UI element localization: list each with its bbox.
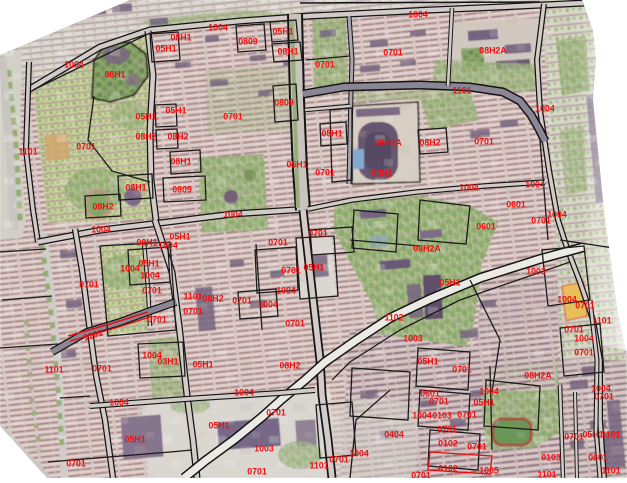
svg-text:08H1: 08H1 (136, 238, 157, 248)
svg-text:1005: 1005 (479, 466, 499, 476)
svg-text:1003: 1003 (403, 334, 423, 344)
svg-text:1101: 1101 (601, 430, 620, 440)
svg-text:05H1: 05H1 (286, 160, 307, 170)
svg-text:0701: 0701 (383, 48, 403, 58)
svg-text:08H2A: 08H2A (479, 46, 507, 56)
svg-text:1004: 1004 (408, 10, 428, 20)
svg-text:0701: 0701 (437, 425, 457, 435)
svg-text:1004: 1004 (223, 210, 243, 220)
svg-text:08H2: 08H2 (167, 132, 188, 142)
svg-text:1004: 1004 (574, 334, 594, 344)
svg-text:0701: 0701 (247, 467, 267, 477)
svg-text:1004: 1004 (535, 104, 555, 114)
svg-text:05H1: 05H1 (303, 263, 324, 273)
svg-text:1004: 1004 (349, 449, 369, 459)
svg-text:0701: 0701 (429, 397, 449, 407)
svg-text:08H2: 08H2 (279, 361, 300, 371)
svg-text:1101: 1101 (44, 365, 63, 375)
svg-text:05H1: 05H1 (371, 169, 392, 179)
svg-text:0102: 0102 (438, 464, 458, 474)
svg-text:0701: 0701 (452, 365, 472, 375)
svg-text:0701: 0701 (329, 455, 349, 465)
svg-text:08H2: 08H2 (202, 294, 223, 304)
svg-text:0701: 0701 (66, 459, 86, 469)
svg-text:08H1: 08H1 (125, 183, 146, 193)
svg-text:0701: 0701 (594, 392, 614, 402)
svg-text:1004: 1004 (109, 398, 129, 408)
svg-text:05H1: 05H1 (473, 398, 494, 408)
svg-text:0601: 0601 (476, 222, 496, 232)
svg-text:0701: 0701 (315, 168, 335, 178)
svg-text:1004: 1004 (91, 225, 111, 235)
svg-text:05H1: 05H1 (192, 360, 213, 370)
svg-text:0701: 0701 (147, 315, 167, 325)
svg-text:0701: 0701 (474, 137, 494, 147)
svg-text:0701: 0701 (411, 471, 431, 479)
svg-text:0404: 0404 (384, 430, 404, 440)
svg-text:0701: 0701 (142, 286, 162, 296)
svg-text:03H1: 03H1 (157, 357, 178, 367)
svg-text:08H2A: 08H2A (374, 138, 402, 148)
svg-text:1004: 1004 (276, 286, 296, 296)
svg-text:1003: 1003 (254, 444, 274, 454)
svg-text:05H1: 05H1 (169, 232, 190, 242)
svg-text:0103: 0103 (432, 411, 452, 421)
svg-text:1004: 1004 (479, 387, 499, 397)
svg-text:05H1: 05H1 (321, 129, 342, 139)
svg-text:0701: 0701 (285, 319, 305, 329)
svg-text:08H2: 08H2 (92, 202, 113, 212)
svg-text:08H1: 08H1 (277, 47, 298, 57)
svg-text:1004: 1004 (208, 23, 228, 33)
svg-text:08H2: 08H2 (419, 138, 440, 148)
svg-text:1003: 1003 (526, 267, 546, 277)
svg-text:1004: 1004 (120, 264, 140, 274)
svg-text:1101: 1101 (537, 470, 556, 479)
svg-text:0701: 0701 (268, 238, 288, 248)
svg-text:0701: 0701 (76, 142, 96, 152)
svg-text:05H1: 05H1 (272, 27, 293, 37)
svg-text:05H1: 05H1 (417, 357, 438, 367)
svg-text:0701: 0701 (564, 432, 584, 442)
svg-text:0701: 0701 (531, 216, 551, 226)
svg-text:0701: 0701 (574, 348, 594, 358)
svg-text:0103: 0103 (541, 453, 561, 463)
svg-text:1101: 1101 (183, 292, 202, 302)
svg-text:0701: 0701 (575, 301, 595, 311)
svg-text:05H1: 05H1 (582, 430, 603, 440)
svg-text:1004: 1004 (64, 60, 84, 70)
svg-text:1101: 1101 (309, 461, 328, 471)
svg-text:08H2: 08H2 (135, 132, 156, 142)
svg-text:0809: 0809 (274, 98, 294, 108)
svg-text:08H1: 08H1 (170, 157, 191, 167)
svg-text:1101: 1101 (601, 466, 620, 476)
svg-text:08H2A: 08H2A (524, 371, 552, 381)
svg-text:0701: 0701 (281, 266, 301, 276)
svg-text:1004: 1004 (412, 411, 432, 421)
svg-text:1102: 1102 (384, 313, 403, 323)
svg-text:05H1: 05H1 (138, 259, 159, 269)
svg-text:0809: 0809 (172, 185, 192, 195)
svg-text:05H1: 05H1 (155, 44, 176, 54)
svg-text:05H1: 05H1 (165, 106, 186, 116)
svg-text:0701: 0701 (92, 364, 112, 374)
svg-text:1004: 1004 (525, 180, 545, 190)
svg-text:0701: 0701 (457, 410, 477, 420)
svg-text:08H1: 08H1 (104, 70, 125, 80)
svg-text:0701: 0701 (266, 408, 286, 418)
svg-text:08H2A: 08H2A (413, 244, 441, 254)
svg-text:0102: 0102 (438, 439, 458, 449)
svg-text:0701: 0701 (315, 60, 335, 70)
svg-text:05H1: 05H1 (439, 278, 460, 288)
svg-text:0601: 0601 (506, 200, 526, 210)
svg-text:1004: 1004 (459, 183, 479, 193)
svg-text:1004: 1004 (140, 271, 160, 281)
svg-text:1004: 1004 (258, 300, 278, 310)
svg-text:0701: 0701 (183, 307, 203, 317)
svg-text:05H1: 05H1 (124, 435, 145, 445)
svg-text:1101: 1101 (592, 316, 611, 326)
svg-text:0601: 0601 (588, 453, 608, 463)
svg-text:0701: 0701 (223, 112, 243, 122)
svg-text:05H1: 05H1 (135, 112, 156, 122)
svg-text:1101: 1101 (452, 86, 471, 96)
svg-text:05H1: 05H1 (208, 421, 229, 431)
svg-text:0701: 0701 (232, 296, 252, 306)
svg-text:08H1: 08H1 (170, 33, 191, 43)
svg-text:1101: 1101 (18, 147, 37, 157)
svg-text:0701: 0701 (467, 442, 487, 452)
svg-text:1004: 1004 (557, 295, 577, 305)
svg-text:0809: 0809 (238, 37, 258, 47)
svg-text:0701: 0701 (79, 280, 99, 290)
svg-text:0701: 0701 (308, 229, 328, 239)
svg-text:1004: 1004 (158, 241, 178, 251)
svg-text:1004: 1004 (234, 388, 254, 398)
